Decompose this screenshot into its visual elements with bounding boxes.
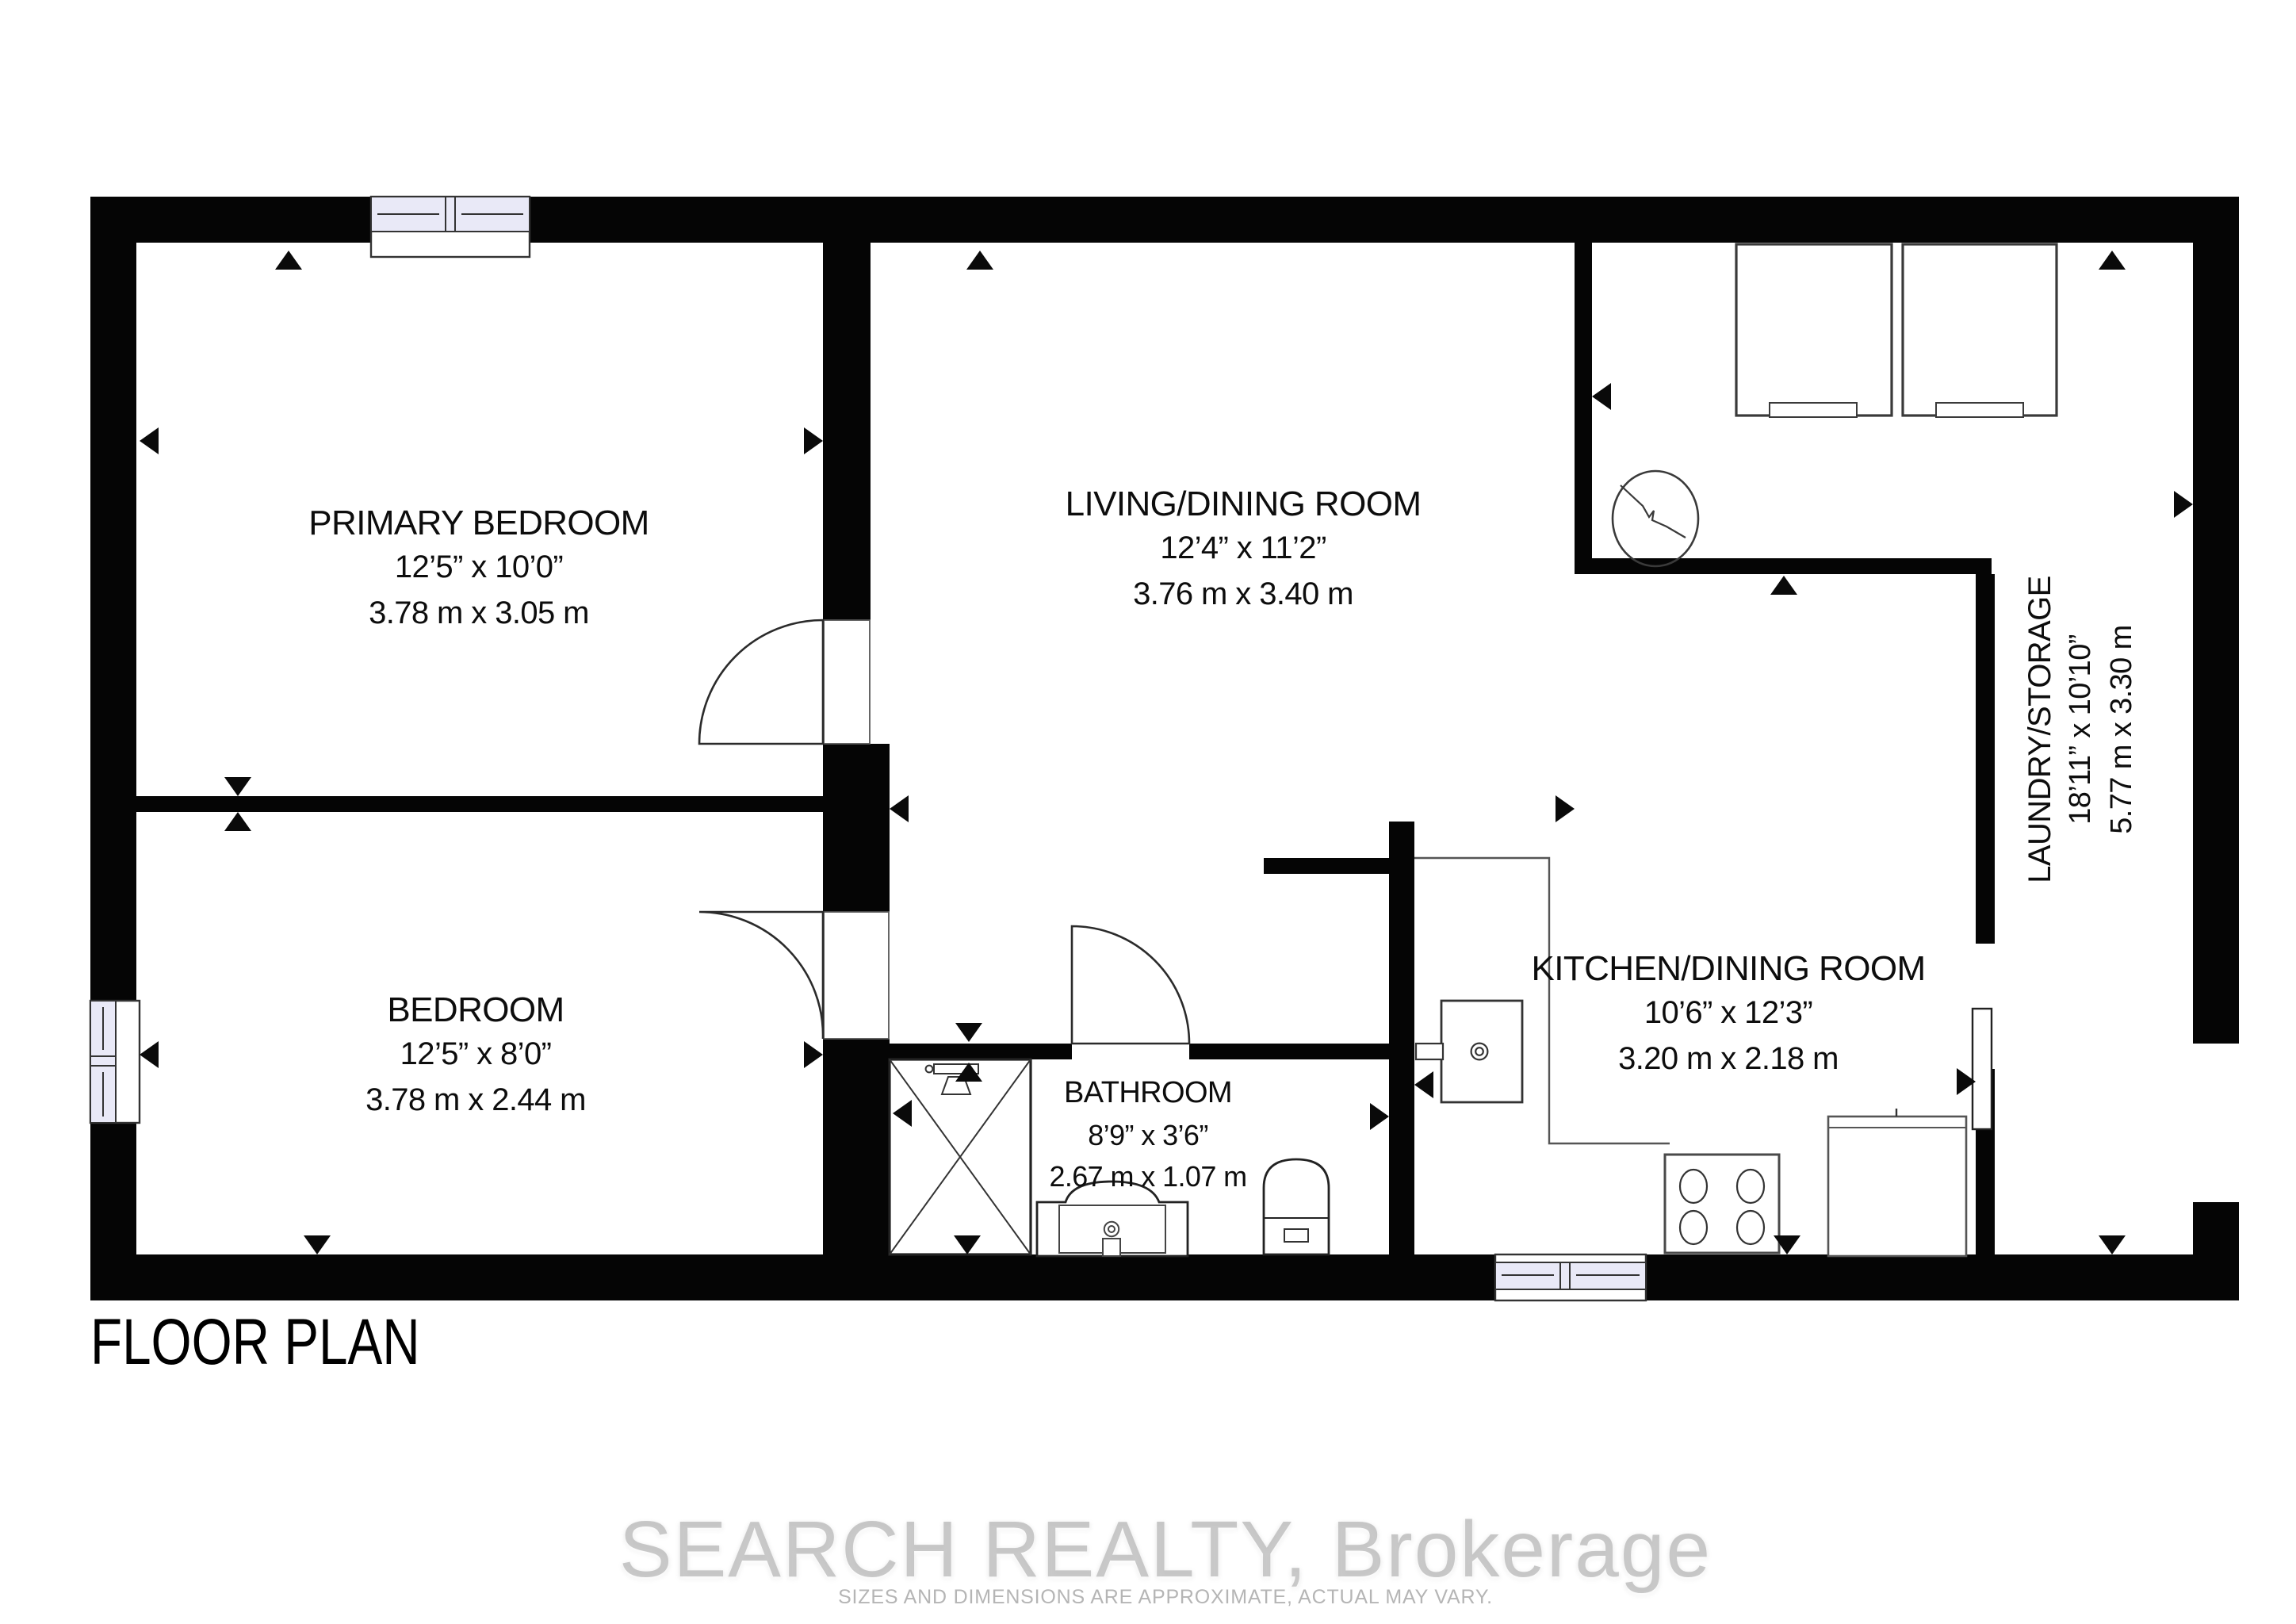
wall-right-upper bbox=[2193, 197, 2239, 1044]
wall-bathroom-north-right bbox=[1189, 1044, 1389, 1059]
room-dim-imperial: 8’9” x 3’6” bbox=[1049, 1115, 1246, 1156]
dimension-arrow bbox=[1770, 576, 1797, 595]
wall-kitchen-west bbox=[1389, 822, 1414, 1256]
wall-bathroom-north-left bbox=[890, 1044, 1072, 1059]
room-dim-imperial: 12’4” x 11’2” bbox=[1066, 527, 1422, 573]
dimension-arrow bbox=[804, 427, 823, 454]
dimension-arrow bbox=[955, 1023, 982, 1042]
page-title: FLOOR PLAN bbox=[90, 1307, 420, 1378]
room-dim-metric: 3.76 m x 3.40 m bbox=[1066, 573, 1422, 619]
dimension-arrow bbox=[2174, 491, 2193, 518]
wall-kitchen-east-a bbox=[1976, 574, 1995, 944]
counter-icon bbox=[1828, 1109, 1966, 1256]
wall-laundry-west bbox=[1575, 243, 1592, 558]
dimension-arrow bbox=[1414, 1071, 1433, 1098]
window-icon-bottom bbox=[1495, 1254, 1646, 1300]
door-arc-bedroom bbox=[699, 912, 823, 1039]
room-label-living-dining: LIVING/DINING ROOM 12’4” x 11’2” 3.76 m … bbox=[1066, 481, 1422, 619]
room-dim-imperial: 12’5” x 10’0” bbox=[308, 546, 649, 592]
dimension-arrow bbox=[2099, 1235, 2126, 1254]
room-dim-metric: 3.20 m x 2.18 m bbox=[1531, 1037, 1925, 1083]
wall-central-lower bbox=[823, 1039, 890, 1256]
water-heater-icon bbox=[1613, 471, 1698, 566]
laundry-fixtures bbox=[1613, 244, 2057, 566]
room-dim-imperial: 18’11” x 10’10” bbox=[2061, 576, 2103, 883]
doors bbox=[699, 620, 1189, 1044]
room-name: LAUNDRY/STORAGE bbox=[2020, 576, 2061, 883]
room-dim-metric: 3.78 m x 3.05 m bbox=[308, 592, 649, 638]
dimension-arrow bbox=[1370, 1103, 1389, 1130]
room-name: BEDROOM bbox=[365, 986, 586, 1032]
room-name: PRIMARY BEDROOM bbox=[308, 500, 649, 546]
door-arc-primary-bedroom bbox=[699, 620, 823, 744]
room-dim-metric: 2.67 m x 1.07 m bbox=[1049, 1156, 1246, 1197]
door-arc-bathroom bbox=[1072, 926, 1189, 1044]
shower-icon bbox=[890, 1059, 1031, 1254]
room-label-bathroom: BATHROOM 8’9” x 3’6” 2.67 m x 1.07 m bbox=[1049, 1074, 1246, 1197]
room-name: BATHROOM bbox=[1049, 1074, 1246, 1115]
wall-central-pillar bbox=[823, 744, 890, 912]
room-dim-metric: 3.78 m x 2.44 m bbox=[365, 1078, 586, 1124]
wall-central-upper bbox=[823, 243, 871, 620]
dimension-arrow bbox=[275, 251, 302, 270]
opening-primary-bedroom bbox=[824, 620, 870, 744]
room-label-kitchen-dining: KITCHEN/DINING ROOM 10’6” x 12’3” 3.20 m… bbox=[1531, 945, 1925, 1083]
watermark-disclaimer: SIZES AND DIMENSIONS ARE APPROXIMATE, AC… bbox=[838, 1586, 1493, 1608]
room-label-bedroom: BEDROOM 12’5” x 8’0” 3.78 m x 2.44 m bbox=[365, 986, 586, 1124]
dryer-icon bbox=[1903, 244, 2057, 417]
wall-left bbox=[90, 197, 136, 1300]
wall-bedroom-divider bbox=[136, 796, 823, 812]
pocket-panel-icon bbox=[1973, 1009, 1992, 1129]
dimension-arrow bbox=[1592, 383, 1611, 410]
dimension-arrow bbox=[966, 251, 993, 270]
windows bbox=[90, 197, 1992, 1300]
washer-icon bbox=[1736, 244, 1892, 417]
dimension-arrow bbox=[140, 1041, 159, 1068]
room-name: LIVING/DINING ROOM bbox=[1066, 481, 1422, 527]
stove-icon bbox=[1665, 1155, 1779, 1253]
window-icon-top bbox=[371, 197, 530, 257]
dimension-arrow bbox=[804, 1041, 823, 1068]
wall-hall-stub bbox=[1264, 858, 1414, 874]
window-icon-left bbox=[90, 1001, 140, 1123]
wall-right-lower bbox=[2193, 1202, 2239, 1300]
room-dim-imperial: 10’6” x 12’3” bbox=[1531, 991, 1925, 1037]
dimension-arrow bbox=[140, 427, 159, 454]
watermark-brand: SEARCH REALTY, Brokerage bbox=[619, 1503, 1712, 1595]
dimension-arrow bbox=[224, 777, 251, 796]
floor-plan-canvas: PRIMARY BEDROOM 12’5” x 10’0” 3.78 m x 3… bbox=[0, 0, 2296, 1624]
dimension-arrow bbox=[2099, 251, 2126, 270]
floor-plan-drawing bbox=[0, 0, 2296, 1624]
toilet-icon bbox=[1264, 1159, 1329, 1254]
room-dim-metric: 5.77 m x 3.30 m bbox=[2103, 576, 2144, 883]
room-label-laundry-storage: LAUNDRY/STORAGE 18’11” x 10’10” 5.77 m x… bbox=[2020, 576, 2144, 883]
dimension-arrow bbox=[890, 795, 909, 822]
dimension-arrow bbox=[1556, 795, 1575, 822]
opening-bedroom bbox=[824, 912, 889, 1039]
room-name: KITCHEN/DINING ROOM bbox=[1531, 945, 1925, 991]
dimension-arrow bbox=[304, 1235, 331, 1254]
room-label-primary-bedroom: PRIMARY BEDROOM 12’5” x 10’0” 3.78 m x 3… bbox=[308, 500, 649, 638]
dimension-arrow bbox=[224, 812, 251, 831]
room-dim-imperial: 12’5” x 8’0” bbox=[365, 1032, 586, 1078]
wall-bottom bbox=[90, 1254, 2239, 1300]
